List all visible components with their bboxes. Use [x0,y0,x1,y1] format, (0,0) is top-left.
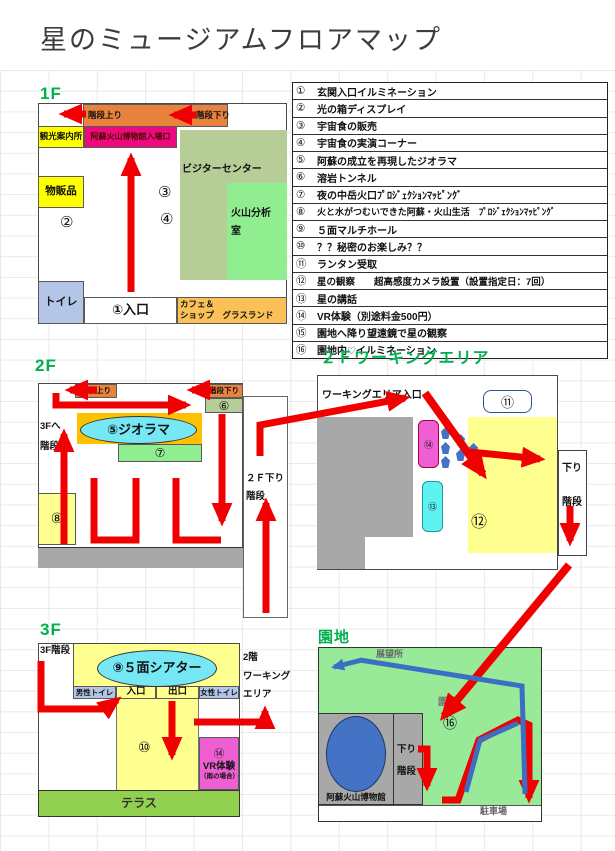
working-num-12-area [468,417,557,553]
legend-row: ⑫星の観察 超高感度カメラ設置（設置指定日：7回） [293,272,607,289]
grounds-down-stairs-label: 下り 階段 [397,739,416,783]
f1-stairs-up-label: 階段上り [88,110,122,121]
f1-goods: 物販品 [38,176,84,208]
working-num-12: ⑫ [471,508,487,532]
f1-num-3: ③ [158,183,171,201]
working-num-11-cell: ⑪ [483,390,532,413]
f2-stairs-down: 階段下り [205,384,243,398]
f1-visitor-center-label: ビジターセンター [182,163,262,176]
f2-down-stairs-label: ２Ｆ下り 階段 [246,470,284,506]
legend-row: ①玄関入口イルミネーション [293,83,607,99]
f1-museum-entrance: 阿蘇火山博物館入場口 [84,126,177,148]
f1-analysis-room-label: 火山分析 室 [231,205,271,241]
legend-row: ⑦夜の中岳火口ﾌﾟﾛｼﾞｪｸｼｮﾝﾏｯﾋﾟﾝｸﾞ [293,186,607,203]
f2-diorama-ellipse: ⑤ジオラマ [80,416,197,444]
f3-mens-toilet: 男性トイレ [73,686,116,699]
legend-row: ⑩？？秘密のお楽しみ？？ [293,237,607,254]
f3-stairs-label: 3F階段 [40,645,70,657]
legend-row: ⑮園地へ降り望遠鏡で星の観察 [293,324,607,341]
f2-to3f-label: 3Fへ 階段 [40,417,61,457]
f3-womens-toilet: 女性トイレ [199,686,239,699]
working-num-13-cell: ⑬ [422,481,443,532]
legend-row: ⑤阿蘇の成立を再現したジオラマ [293,151,607,168]
f3-theater-ellipse: ⑨５面シアター [97,650,217,687]
grounds-park-label: 園地 [438,697,457,709]
f3-num-10: ⑩ [138,740,151,756]
legend-row: ⑥溶岩トンネル [293,168,607,185]
f1-num-4: ④ [160,210,173,228]
f2-num-7-cell: ⑦ [118,444,202,462]
f3-exit-cell: 出口 [156,686,199,699]
f2-stairs-up: 階段上り [75,384,117,398]
f2-down-corridor [243,396,288,618]
f1-heading: 1F [40,84,62,104]
legend-row: ②光の箱ディスプレイ [293,99,607,116]
page-title: 星のミュージアムフロアマップ [40,18,442,57]
f3-num-10-area [116,699,199,790]
f1-num-2: ② [60,213,73,231]
f2-num-6-cell: ⑥ [205,398,243,413]
grounds-num-16: ⑯ [443,713,457,733]
working-down-stairs-label: 下り 階段 [562,452,582,520]
legend-row: ⑧火と水がつむいできた阿蘇・火山生活 ﾌﾟﾛｼﾞｪｸｼｮﾝﾏｯﾋﾟﾝｸﾞ [293,203,607,220]
legend-row: ⑨５面マルチホール [293,220,607,237]
museum-dome [326,716,386,792]
legend-row: ③宇宙食の販売 [293,117,607,134]
grounds-observatory-label: 展望所 [376,649,403,661]
grounds-heading: 園地 [318,626,350,647]
f1-toilet: トイレ [38,281,84,324]
f1-entrance-cell: ①入口 [84,297,177,324]
grounds-museum-label: 阿蘇火山博物館 [318,792,394,803]
working-heading: ２Ｆワーキングエリア [320,344,490,368]
legend-row: ⑭VR体験（別途料金500円） [293,306,607,323]
working-entrance-label: ワーキングエリア入口 [322,389,422,402]
working-num-14-cell: ⑭ [418,420,439,468]
f2-wall [38,547,243,568]
floor-map-page: { "title": "星のミュージアムフロアマップ", "colors": {… [0,0,615,851]
f3-vr-cell: ⑭ VR体験 （雨の場合） [199,737,239,790]
legend-row: ⑪ランタン受取 [293,255,607,272]
f1-stairs-down-label: 階段下り [196,110,230,121]
grounds-parking-strip [319,805,541,821]
legend-row: ⑬星の講話 [293,289,607,306]
f3-terrace: テラス [38,790,240,817]
f2-num-8-cell: ⑧ [38,493,76,545]
f2-heading: 2F [35,356,57,376]
legend-table: ①玄関入口イルミネーション ②光の箱ディスプレイ ③宇宙食の販売 ④宇宙食の実演… [292,82,608,359]
f3-entrance-cell: 入口 [116,686,156,699]
f1-cafe-shop-label: カフェ＆ ショップ グラスランド [180,299,273,322]
legend-row: ④宇宙食の実演コーナー [293,134,607,151]
grounds-parking-label: 駐車場 [480,806,507,818]
working-wall-block [317,417,413,537]
f1-tourist-info: 観光案内所 [38,126,84,148]
f3-heading: 3F [40,620,62,640]
working-wall-block-foot [317,537,365,569]
f3-to-working-label: 2階 ワーキング エリア [243,649,290,705]
